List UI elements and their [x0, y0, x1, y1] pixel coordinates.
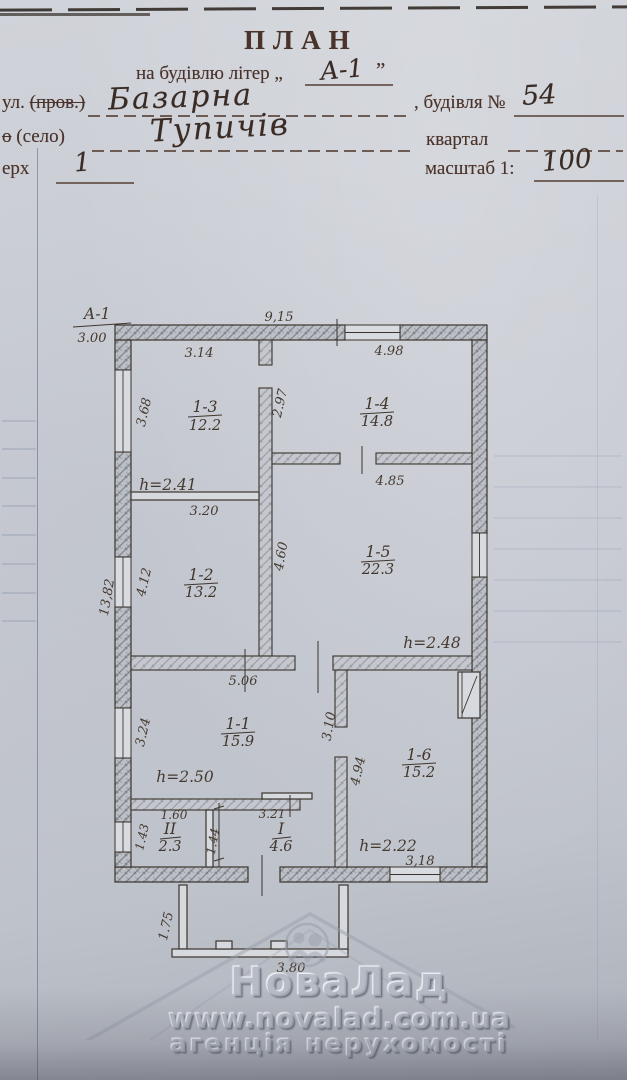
scanned-plan-page: ПЛАН на будівлю літер „ А-1 ” ул. (пров.…: [0, 0, 627, 1080]
dim-r14-w: 4.98: [374, 344, 404, 359]
room-1-4-number: 1-4: [365, 395, 390, 413]
dim-r13-h: 3.68: [134, 396, 155, 428]
height-1-3: h=2.41: [139, 476, 196, 494]
room-1-6-number: 1-6: [407, 746, 432, 764]
section-label: А-1: [83, 305, 111, 323]
dim-r12-w: 3.20: [190, 504, 219, 519]
building-underline: [514, 115, 624, 117]
dim-r12-h: 4.12: [134, 566, 155, 599]
settlement-label-struck: о: [2, 126, 12, 147]
letter-value: А-1: [319, 53, 365, 86]
bottom-scan-shadow: [0, 988, 627, 1080]
room-1-5-number: 1-5: [366, 543, 391, 561]
street-label: ул. (пров.): [2, 92, 85, 114]
room-II-area: 2.3: [157, 839, 181, 855]
floor-value: 1: [73, 147, 92, 178]
dim-width-top: 9,15: [265, 310, 294, 325]
page-top-rule-2: [0, 13, 150, 16]
room-1-2-area: 13.2: [185, 585, 217, 601]
dim-e-upper: 3.10: [320, 711, 340, 742]
page-top-rule: [0, 5, 627, 11]
street-label-text: ул.: [2, 92, 25, 113]
dim-porch-h: 1.75: [156, 910, 177, 942]
room-1-3-number: 1-3: [193, 398, 218, 416]
settlement-value: Тупичів: [149, 106, 291, 149]
dim-r15-w: 4.85: [375, 474, 405, 489]
dim-r11-h: 3.24: [133, 716, 154, 748]
floor-plan-drawing: А-1 3.00: [0, 280, 627, 1040]
building-label: , будівля №: [414, 92, 506, 114]
room-1-4-area: 14.8: [361, 414, 393, 430]
dim-r13-w: 3.14: [185, 346, 214, 361]
kvartal-label: квартал: [426, 129, 488, 151]
room-1-1-number: 1-1: [226, 715, 251, 733]
building-value: 54: [521, 79, 557, 112]
letter-underline: [305, 84, 393, 86]
floor-underline: [56, 182, 134, 184]
room-1-5-area: 22.3: [361, 562, 394, 578]
dim-rI-w: 3.21: [259, 807, 286, 821]
room-I-area: 4.6: [268, 839, 292, 855]
room-1-3-area: 12.2: [189, 418, 221, 434]
height-1-1: h=2.50: [156, 768, 214, 786]
room-1-6-area: 15.2: [403, 765, 435, 781]
room-1-1-area: 15.9: [222, 734, 254, 750]
height-1-6: h=2.22: [359, 837, 416, 855]
porch-step: [216, 941, 232, 949]
settlement-label-text: (село): [16, 126, 65, 147]
scale-value: 100: [541, 144, 593, 178]
section-height: 3.00: [78, 331, 107, 346]
subtitle-suffix: ”: [376, 58, 385, 83]
settlement-label: о (село): [2, 126, 65, 148]
page-title: ПЛАН: [244, 25, 358, 56]
dim-rII-h: 1.43: [132, 822, 152, 852]
scale-underline: [534, 180, 624, 182]
dim-e-lower: 4.94: [348, 755, 369, 788]
height-1-5: h=2.48: [403, 634, 461, 652]
room-I-number: І: [277, 820, 285, 838]
scale-label: масштаб 1:: [425, 158, 515, 180]
dim-r15-h: 4.60: [271, 541, 291, 573]
chimney-symbol: [458, 672, 480, 718]
floor-label: ерх: [2, 158, 29, 180]
dim-r16-w: 3,18: [406, 854, 435, 869]
dim-wall-a-h: 2.97: [270, 387, 292, 420]
room-1-2-number: 1-2: [189, 566, 214, 584]
settlement-underline: [92, 150, 414, 152]
interior-walls: [131, 340, 472, 882]
room-II-number: ІІ: [163, 820, 177, 838]
street-label-struck: (пров.): [30, 92, 86, 113]
dim-r11-w: 5.06: [229, 674, 258, 689]
